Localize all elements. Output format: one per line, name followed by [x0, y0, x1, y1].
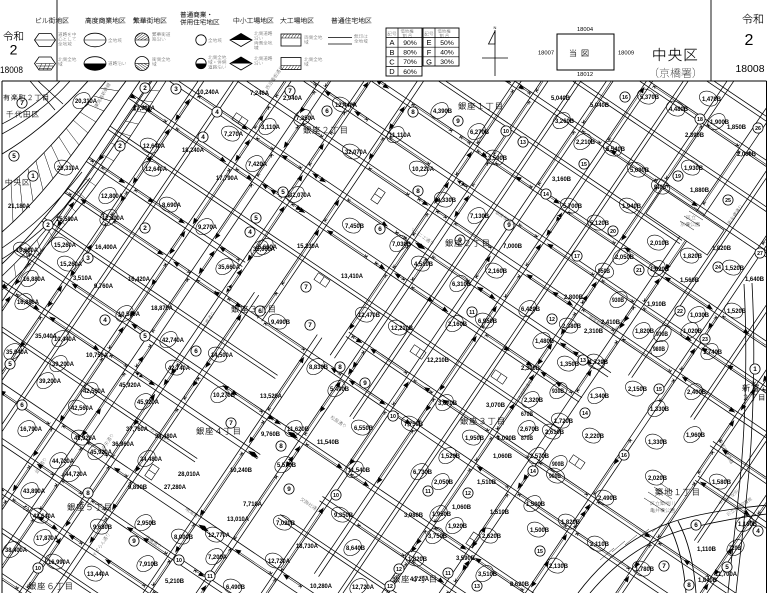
svg-text:1,820B: 1,820B: [683, 253, 702, 260]
svg-text:39,200A: 39,200A: [39, 378, 61, 385]
svg-text:3,980B: 3,980B: [404, 512, 423, 519]
svg-text:5,040B: 5,040B: [590, 102, 609, 109]
svg-text:45,920A: 45,920A: [90, 449, 112, 456]
svg-text:6: 6: [378, 226, 382, 233]
svg-text:F: F: [427, 48, 432, 57]
svg-text:45,920A: 45,920A: [74, 435, 96, 442]
svg-text:5: 5: [254, 215, 258, 222]
svg-text:13: 13: [580, 358, 586, 364]
svg-text:1,840B: 1,840B: [698, 577, 717, 584]
svg-text:3,510A: 3,510A: [73, 275, 92, 282]
svg-text:34,480A: 34,480A: [140, 456, 162, 463]
svg-text:2,130B: 2,130B: [549, 563, 568, 570]
svg-text:5: 5: [12, 153, 16, 160]
svg-text:2,110B: 2,110B: [590, 541, 609, 548]
svg-text:7,270A: 7,270A: [224, 131, 243, 138]
svg-text:4,480B: 4,480B: [669, 106, 688, 113]
svg-text:35,660A: 35,660A: [218, 264, 240, 271]
svg-text:1,500B: 1,500B: [530, 527, 549, 534]
svg-text:12,440A: 12,440A: [335, 102, 357, 109]
svg-text:2: 2: [46, 222, 50, 229]
svg-text:7,000B: 7,000B: [503, 243, 522, 250]
svg-text:8,830B: 8,830B: [309, 364, 328, 371]
svg-text:18: 18: [697, 117, 703, 123]
svg-text:5: 5: [281, 189, 285, 196]
svg-text:7,450B: 7,450B: [345, 223, 364, 230]
svg-text:11: 11: [207, 574, 213, 580]
svg-text:25: 25: [725, 198, 731, 204]
svg-text:10: 10: [176, 558, 182, 564]
svg-text:5,040B: 5,040B: [551, 95, 570, 102]
svg-text:7,240A: 7,240A: [250, 90, 269, 97]
svg-text:16,880A: 16,880A: [17, 299, 39, 306]
svg-text:8: 8: [416, 188, 420, 195]
svg-text:2,570B: 2,570B: [530, 453, 549, 460]
svg-text:38,400A: 38,400A: [5, 547, 27, 554]
svg-text:G: G: [426, 57, 432, 66]
svg-text:1: 1: [753, 366, 757, 373]
svg-text:1,820B: 1,820B: [561, 519, 580, 526]
svg-text:8,690A: 8,690A: [162, 202, 181, 209]
svg-text:6,550B: 6,550B: [354, 425, 373, 432]
svg-text:12,640A: 12,640A: [143, 143, 165, 150]
svg-text:27: 27: [757, 251, 763, 257]
svg-text:2,380B: 2,380B: [562, 323, 581, 330]
svg-text:17,980A: 17,980A: [133, 105, 155, 112]
svg-text:11,620B: 11,620B: [287, 426, 309, 433]
svg-text:8,620B: 8,620B: [510, 581, 529, 588]
svg-text:930B: 930B: [552, 388, 564, 395]
svg-text:18012: 18012: [577, 72, 593, 78]
svg-text:950B: 950B: [598, 268, 610, 275]
svg-text:5,120B: 5,120B: [590, 220, 609, 227]
svg-text:1,910B: 1,910B: [647, 301, 666, 308]
svg-text:9,680B: 9,680B: [93, 524, 112, 531]
svg-text:2,940A: 2,940A: [283, 95, 302, 102]
svg-text:27,280A: 27,280A: [164, 484, 186, 491]
svg-text:1,340B: 1,340B: [590, 393, 609, 400]
svg-text:8,000B: 8,000B: [174, 534, 193, 541]
svg-text:12,210B: 12,210B: [427, 357, 449, 364]
svg-text:14,500A: 14,500A: [211, 352, 233, 359]
svg-text:36,960A: 36,960A: [112, 441, 134, 448]
svg-text:42,740A: 42,740A: [168, 365, 190, 372]
svg-text:5,540B: 5,540B: [606, 146, 625, 153]
svg-text:2,310B: 2,310B: [584, 328, 603, 335]
svg-text:5,700B: 5,700B: [563, 203, 582, 210]
svg-text:9: 9: [132, 538, 136, 545]
svg-text:5,210B: 5,210B: [165, 578, 184, 585]
svg-text:6: 6: [325, 108, 329, 115]
svg-text:1,820B: 1,820B: [635, 328, 654, 335]
svg-text:9,890B: 9,890B: [128, 484, 147, 491]
svg-text:1,470B: 1,470B: [702, 96, 721, 103]
svg-text:13,440A: 13,440A: [87, 571, 109, 578]
svg-text:3,260B: 3,260B: [555, 118, 574, 125]
svg-text:11,110A: 11,110A: [389, 132, 411, 139]
svg-text:19: 19: [675, 174, 681, 180]
svg-text:16,790A: 16,790A: [20, 426, 42, 433]
svg-text:1,480B: 1,480B: [535, 338, 554, 345]
svg-text:E: E: [426, 38, 431, 47]
svg-text:900B: 900B: [552, 461, 564, 468]
svg-text:1,780B: 1,780B: [635, 566, 654, 573]
svg-text:15: 15: [581, 162, 587, 168]
svg-text:1,850B: 1,850B: [727, 124, 746, 131]
svg-text:7,350A: 7,350A: [296, 115, 315, 122]
svg-text:930B: 930B: [656, 331, 668, 338]
svg-text:42,740A: 42,740A: [162, 337, 184, 344]
svg-text:13: 13: [520, 140, 526, 146]
svg-text:4,510B: 4,510B: [414, 261, 433, 268]
svg-text:1,930B: 1,930B: [684, 165, 703, 172]
svg-text:9: 9: [363, 380, 367, 387]
svg-text:3: 3: [174, 86, 178, 93]
svg-text:7,750B: 7,750B: [404, 421, 423, 428]
svg-text:6,950B: 6,950B: [478, 318, 497, 325]
svg-text:2,950B: 2,950B: [137, 520, 156, 527]
svg-text:2,010B: 2,010B: [650, 240, 669, 247]
svg-text:6,420B: 6,420B: [521, 306, 540, 313]
svg-text:40%: 40%: [440, 50, 454, 57]
svg-text:32,070A: 32,070A: [345, 149, 367, 156]
svg-text:18008: 18008: [0, 65, 23, 76]
svg-text:11: 11: [469, 310, 475, 316]
svg-text:3,110A: 3,110A: [261, 124, 280, 131]
svg-text:16: 16: [622, 95, 628, 101]
svg-text:20: 20: [610, 229, 616, 235]
svg-text:720B: 720B: [729, 545, 741, 552]
svg-text:21,180A: 21,180A: [8, 203, 30, 210]
svg-text:12,470B: 12,470B: [358, 312, 380, 319]
svg-text:930B: 930B: [612, 297, 624, 304]
svg-text:13,410A: 13,410A: [341, 273, 363, 280]
svg-text:1,820B: 1,820B: [712, 245, 731, 252]
svg-text:5,090B: 5,090B: [630, 167, 649, 174]
svg-text:2: 2: [143, 85, 147, 92]
svg-text:2,670B: 2,670B: [520, 426, 539, 433]
svg-text:18,730A: 18,730A: [296, 543, 318, 550]
svg-text:1,920B: 1,920B: [448, 523, 467, 530]
svg-text:11,540B: 11,540B: [317, 439, 339, 446]
svg-text:3: 3: [86, 255, 90, 262]
svg-text:42,640A: 42,640A: [33, 513, 55, 520]
svg-text:5: 5: [725, 564, 729, 571]
svg-text:17,870A: 17,870A: [36, 535, 58, 542]
svg-text:3,590B: 3,590B: [456, 555, 475, 562]
svg-text:8: 8: [687, 582, 691, 589]
svg-text:90%: 90%: [403, 40, 417, 47]
svg-text:13,010A: 13,010A: [227, 516, 249, 523]
svg-text:2,390B: 2,390B: [521, 365, 540, 372]
svg-text:42,560A: 42,560A: [83, 388, 105, 395]
svg-text:6,730B: 6,730B: [413, 469, 432, 476]
svg-text:10,440A: 10,440A: [54, 336, 76, 343]
svg-text:1,020B: 1,020B: [683, 328, 702, 335]
svg-text:4: 4: [756, 528, 760, 535]
svg-text:1,740B: 1,740B: [703, 349, 722, 356]
svg-text:39,200A: 39,200A: [52, 361, 74, 368]
svg-text:7,130B: 7,130B: [470, 213, 489, 220]
svg-text:1,520B: 1,520B: [725, 265, 744, 272]
svg-text:7: 7: [288, 88, 292, 95]
svg-text:16,400A: 16,400A: [95, 244, 117, 251]
svg-text:10,680A: 10,680A: [16, 247, 38, 254]
svg-text:A: A: [389, 38, 394, 47]
svg-text:12,800A: 12,800A: [101, 193, 123, 200]
svg-text:2,050B: 2,050B: [434, 479, 453, 486]
svg-text:6,490B: 6,490B: [226, 584, 245, 591]
svg-text:70%: 70%: [403, 59, 417, 66]
svg-text:5,570B: 5,570B: [277, 462, 296, 469]
svg-text:4,390B: 4,390B: [433, 108, 452, 115]
svg-text:1,820B: 1,820B: [408, 556, 427, 563]
svg-text:5,370B: 5,370B: [640, 94, 659, 101]
svg-text:45,920A: 45,920A: [119, 382, 141, 389]
svg-text:1,110B: 1,110B: [697, 546, 716, 553]
svg-text:15,260A: 15,260A: [60, 261, 82, 268]
svg-text:16,880A: 16,880A: [23, 276, 45, 283]
svg-text:2,220B: 2,220B: [585, 433, 604, 440]
svg-text:1,950B: 1,950B: [465, 435, 484, 442]
svg-text:9,490B: 9,490B: [271, 319, 290, 326]
svg-text:3,750B: 3,750B: [428, 533, 447, 540]
svg-text:7,910B: 7,910B: [139, 561, 158, 568]
svg-text:7: 7: [304, 284, 308, 291]
svg-text:D: D: [389, 67, 395, 76]
svg-text:7,420A: 7,420A: [248, 161, 267, 168]
svg-text:940B: 940B: [654, 184, 666, 191]
svg-text:12,640A: 12,640A: [145, 166, 167, 173]
svg-text:15,230A: 15,230A: [297, 243, 319, 250]
svg-text:18009: 18009: [618, 51, 634, 57]
svg-text:7: 7: [229, 420, 233, 427]
svg-text:45,920A: 45,920A: [137, 399, 159, 406]
svg-text:2,150B: 2,150B: [628, 386, 647, 393]
svg-text:870B: 870B: [521, 435, 533, 442]
svg-text:16,420A: 16,420A: [128, 276, 150, 283]
svg-text:15: 15: [656, 387, 662, 393]
svg-text:2,620B: 2,620B: [482, 533, 501, 540]
svg-text:2,390B: 2,390B: [685, 132, 704, 139]
svg-text:30%: 30%: [440, 59, 454, 66]
svg-text:2: 2: [143, 225, 147, 232]
svg-text:8: 8: [279, 443, 283, 450]
svg-text:43,890A: 43,890A: [23, 488, 45, 495]
svg-text:1,960B: 1,960B: [686, 432, 705, 439]
svg-text:2,490B: 2,490B: [598, 495, 617, 502]
svg-text:12,770A: 12,770A: [208, 532, 230, 539]
svg-text:21: 21: [636, 268, 642, 274]
svg-text:7: 7: [662, 563, 666, 570]
svg-text:1,060B: 1,060B: [452, 504, 471, 511]
svg-text:9,270A: 9,270A: [198, 224, 217, 231]
svg-text:1,520B: 1,520B: [441, 453, 460, 460]
svg-text:12: 12: [465, 491, 471, 497]
svg-text:14: 14: [530, 469, 536, 475]
svg-text:1,720B: 1,720B: [554, 418, 573, 425]
svg-text:44,720A: 44,720A: [52, 458, 74, 465]
svg-text:8: 8: [86, 490, 90, 497]
svg-text:1,720B: 1,720B: [589, 359, 608, 366]
svg-text:24: 24: [715, 265, 721, 271]
svg-text:4: 4: [103, 317, 107, 324]
svg-text:42,560A: 42,560A: [71, 405, 93, 412]
svg-text:5,490B: 5,490B: [330, 386, 349, 393]
svg-text:9: 9: [456, 118, 460, 125]
svg-text:3,070B: 3,070B: [486, 402, 505, 409]
svg-text:18,240A: 18,240A: [182, 147, 204, 154]
svg-text:4: 4: [248, 229, 252, 236]
svg-text:2: 2: [745, 32, 754, 49]
svg-text:3,070B: 3,070B: [438, 400, 457, 407]
svg-text:4: 4: [215, 109, 219, 116]
svg-text:2,800B: 2,800B: [564, 294, 583, 301]
svg-text:12: 12: [549, 317, 555, 323]
svg-text:15: 15: [537, 549, 543, 555]
svg-text:11,540B: 11,540B: [348, 467, 370, 474]
svg-text:16,990A: 16,990A: [48, 559, 70, 566]
svg-text:1,350B: 1,350B: [560, 361, 579, 368]
svg-text:6,310B: 6,310B: [452, 281, 471, 288]
svg-text:5,660A: 5,660A: [258, 244, 277, 251]
svg-text:10,580A: 10,580A: [118, 311, 140, 318]
svg-text:9: 9: [287, 486, 291, 493]
svg-text:7,020B: 7,020B: [276, 520, 295, 527]
svg-text:2,400B: 2,400B: [687, 389, 706, 396]
svg-text:12: 12: [396, 567, 402, 573]
svg-text:12,800A: 12,800A: [102, 215, 124, 222]
svg-text:13: 13: [474, 584, 480, 590]
svg-text:12: 12: [387, 584, 393, 590]
svg-text:2,000B: 2,000B: [737, 151, 756, 158]
svg-text:6: 6: [194, 348, 198, 355]
svg-text:9,350B: 9,350B: [334, 512, 353, 519]
svg-text:17,790A: 17,790A: [216, 175, 238, 182]
svg-text:14: 14: [582, 411, 588, 417]
svg-text:18007: 18007: [538, 51, 554, 57]
svg-text:9,760B: 9,760B: [261, 431, 280, 438]
svg-text:11: 11: [445, 571, 451, 577]
svg-text:10,220A: 10,220A: [412, 166, 434, 173]
svg-text:16: 16: [621, 453, 627, 459]
svg-text:12,720A: 12,720A: [268, 558, 290, 565]
svg-text:1,500B: 1,500B: [526, 501, 545, 508]
svg-text:10,240A: 10,240A: [197, 89, 219, 96]
svg-text:1,820B: 1,820B: [650, 266, 669, 273]
svg-text:1,580B: 1,580B: [712, 479, 731, 486]
svg-text:1,330B: 1,330B: [650, 406, 669, 413]
svg-text:32,070A: 32,070A: [289, 192, 311, 199]
svg-text:2,160B: 2,160B: [448, 321, 467, 328]
svg-text:3,510B: 3,510B: [478, 571, 497, 578]
svg-text:1,510B: 1,510B: [477, 479, 496, 486]
svg-text:980B: 980B: [653, 346, 665, 353]
svg-text:60%: 60%: [403, 69, 417, 76]
svg-text:8: 8: [411, 109, 415, 116]
svg-text:15,580A: 15,580A: [56, 216, 78, 223]
svg-text:10,280A: 10,280A: [310, 583, 332, 590]
svg-text:20,310A: 20,310A: [57, 165, 79, 172]
svg-text:1,560B: 1,560B: [680, 277, 699, 284]
svg-text:7: 7: [308, 322, 312, 329]
svg-text:1,520B: 1,520B: [727, 308, 746, 315]
svg-text:6: 6: [20, 402, 24, 409]
svg-text:1,880B: 1,880B: [690, 187, 709, 194]
svg-text:80%: 80%: [403, 50, 417, 57]
svg-text:5: 5: [8, 361, 12, 368]
svg-text:2: 2: [118, 143, 122, 150]
svg-text:23: 23: [702, 337, 708, 343]
svg-text:15,260A: 15,260A: [54, 242, 76, 249]
svg-text:670B: 670B: [521, 411, 533, 418]
svg-text:B: B: [389, 48, 394, 57]
svg-text:6: 6: [694, 522, 698, 529]
svg-text:18,870A: 18,870A: [151, 305, 173, 312]
svg-text:1,640B: 1,640B: [745, 276, 764, 283]
svg-text:C: C: [389, 57, 395, 66]
svg-text:N: N: [494, 25, 497, 30]
svg-text:3,590B: 3,590B: [488, 155, 507, 162]
svg-text:1,510B: 1,510B: [490, 509, 509, 516]
svg-text:9,760A: 9,760A: [94, 283, 113, 290]
svg-text:6: 6: [258, 308, 262, 315]
svg-text:34,480A: 34,480A: [155, 433, 177, 440]
svg-text:11: 11: [425, 489, 431, 495]
svg-text:20,310A: 20,310A: [75, 98, 97, 105]
svg-text:10: 10: [390, 414, 396, 420]
svg-text:2,320B: 2,320B: [524, 397, 543, 404]
svg-text:2,610B: 2,610B: [545, 429, 564, 436]
svg-text:1: 1: [31, 173, 35, 180]
svg-text:900B: 900B: [549, 473, 561, 480]
svg-text:1,950B: 1,950B: [432, 511, 451, 518]
svg-text:2,020B: 2,020B: [648, 475, 667, 482]
svg-text:5: 5: [143, 333, 147, 340]
svg-text:1,090B: 1,090B: [497, 435, 516, 442]
svg-text:10: 10: [35, 566, 41, 572]
svg-text:14: 14: [543, 192, 549, 198]
svg-text:7,030B: 7,030B: [392, 241, 411, 248]
svg-text:3,160B: 3,160B: [552, 176, 571, 183]
svg-text:7,710A: 7,710A: [243, 501, 262, 508]
svg-text:1,940B: 1,940B: [622, 203, 641, 210]
svg-text:10,240B: 10,240B: [230, 467, 252, 474]
svg-text:1,060B: 1,060B: [493, 453, 512, 460]
svg-text:9,330B: 9,330B: [437, 197, 456, 204]
svg-text:17: 17: [574, 254, 580, 260]
svg-text:8,640B: 8,640B: [346, 545, 365, 552]
svg-text:10: 10: [333, 493, 339, 499]
svg-text:28,010A: 28,010A: [178, 471, 200, 478]
svg-text:50%: 50%: [440, 40, 454, 47]
svg-text:13,520A: 13,520A: [260, 393, 282, 400]
svg-text:22: 22: [677, 309, 683, 315]
svg-text:26: 26: [755, 126, 761, 132]
svg-text:1,030B: 1,030B: [690, 312, 709, 319]
svg-text:18008: 18008: [736, 64, 765, 75]
svg-text:7,200A: 7,200A: [208, 554, 227, 561]
svg-text:8: 8: [338, 364, 342, 371]
svg-text:2: 2: [10, 42, 18, 58]
svg-text:35,040A: 35,040A: [6, 349, 28, 356]
svg-text:2,050B: 2,050B: [615, 254, 634, 261]
svg-text:10,270B: 10,270B: [213, 392, 235, 399]
svg-text:10,750A: 10,750A: [86, 352, 108, 359]
svg-text:2,210B: 2,210B: [576, 139, 595, 146]
svg-text:9: 9: [507, 222, 511, 229]
svg-text:2,160B: 2,160B: [488, 268, 507, 275]
